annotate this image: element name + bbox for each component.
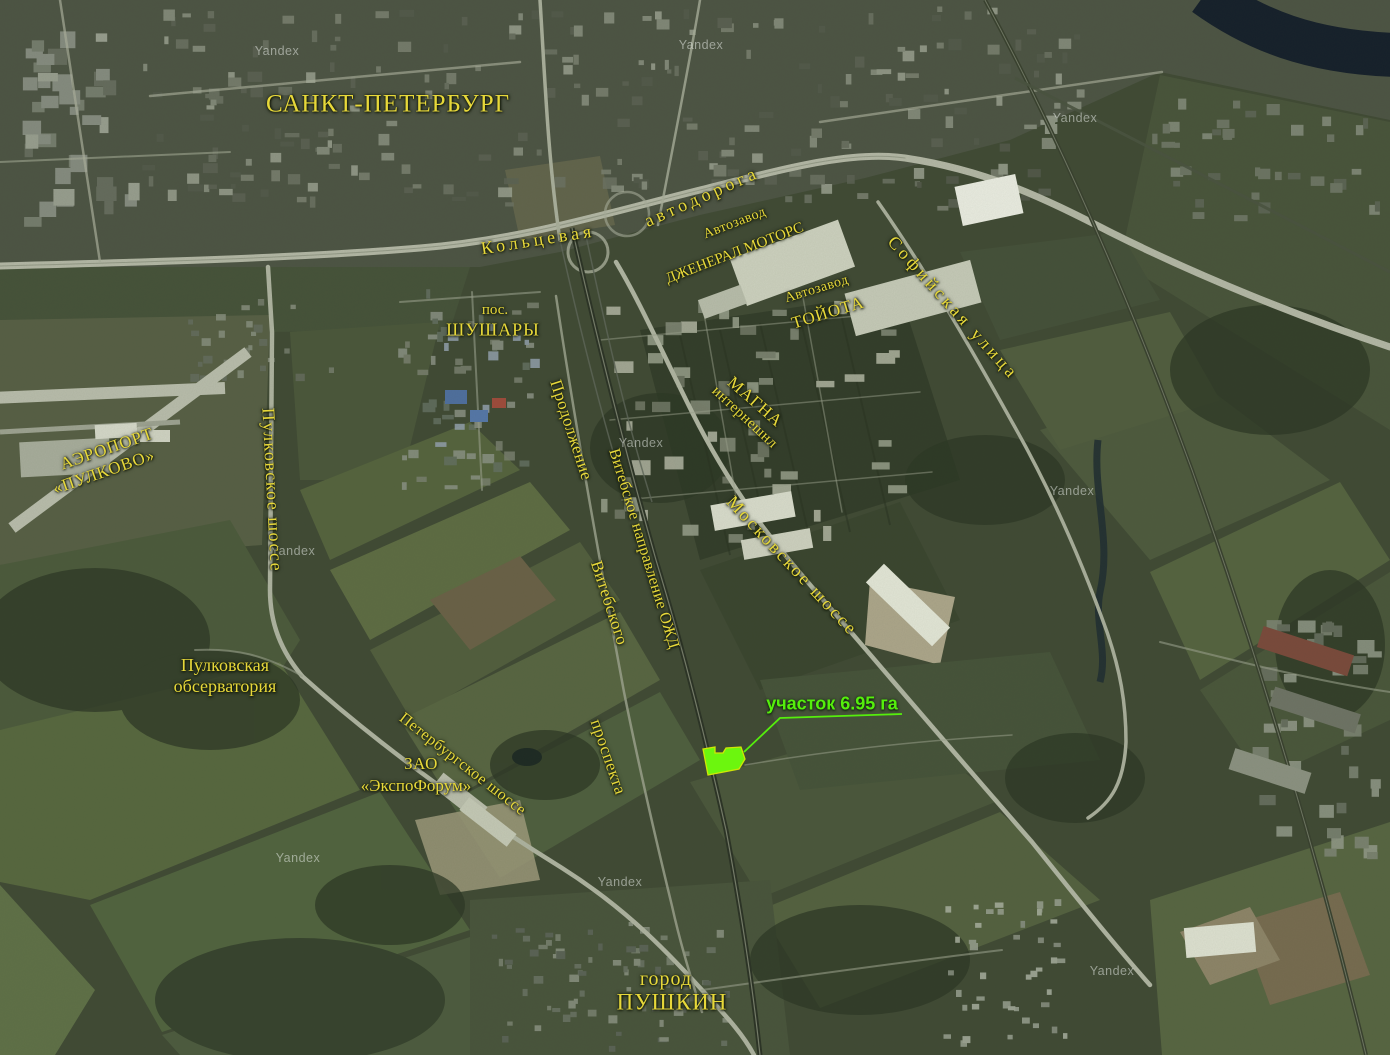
site-polygon[interactable] bbox=[703, 747, 745, 775]
site-leader-line bbox=[744, 714, 902, 752]
site-overlay bbox=[0, 0, 1390, 1055]
satellite-map[interactable]: YandexYandexYandexYandexYandexYandexYand… bbox=[0, 0, 1390, 1055]
